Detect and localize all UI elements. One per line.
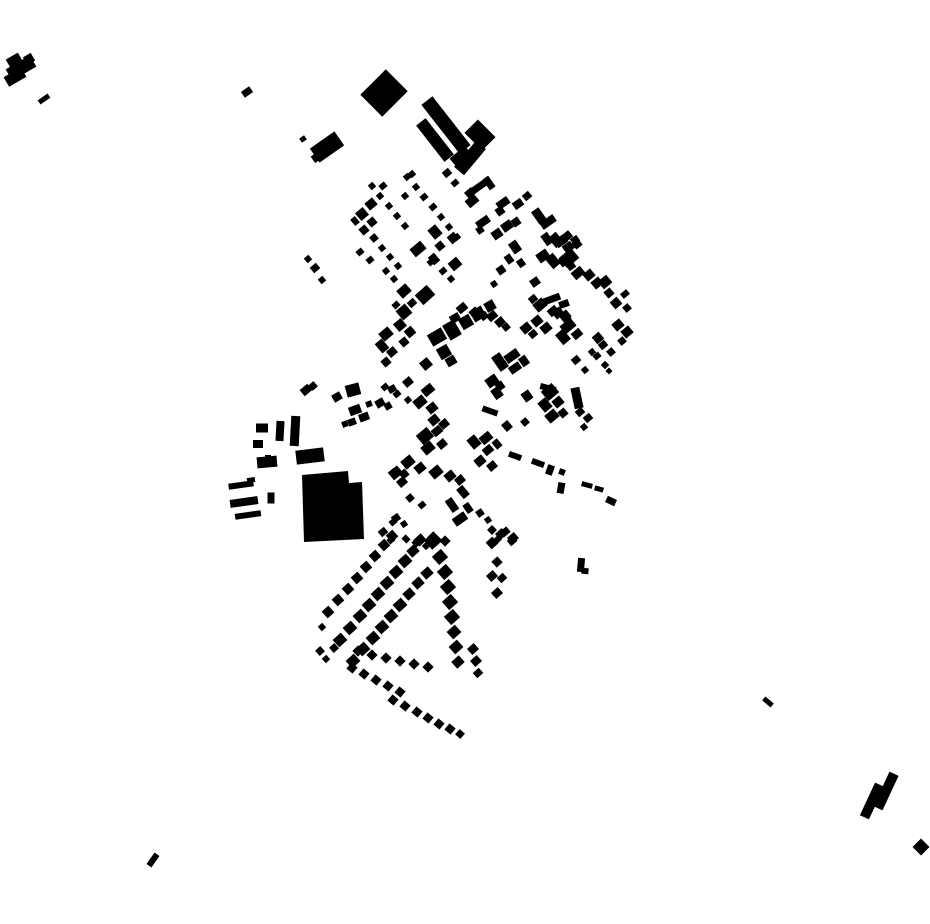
building-footprint xyxy=(275,421,284,441)
building-footprint xyxy=(581,568,588,575)
figure-ground-map xyxy=(0,0,930,924)
map-canvas xyxy=(0,0,930,924)
building-footprint xyxy=(268,493,275,504)
building-footprint xyxy=(257,456,278,469)
building-footprint xyxy=(253,440,263,448)
building-footprint xyxy=(290,416,301,446)
building-footprint xyxy=(256,424,268,433)
